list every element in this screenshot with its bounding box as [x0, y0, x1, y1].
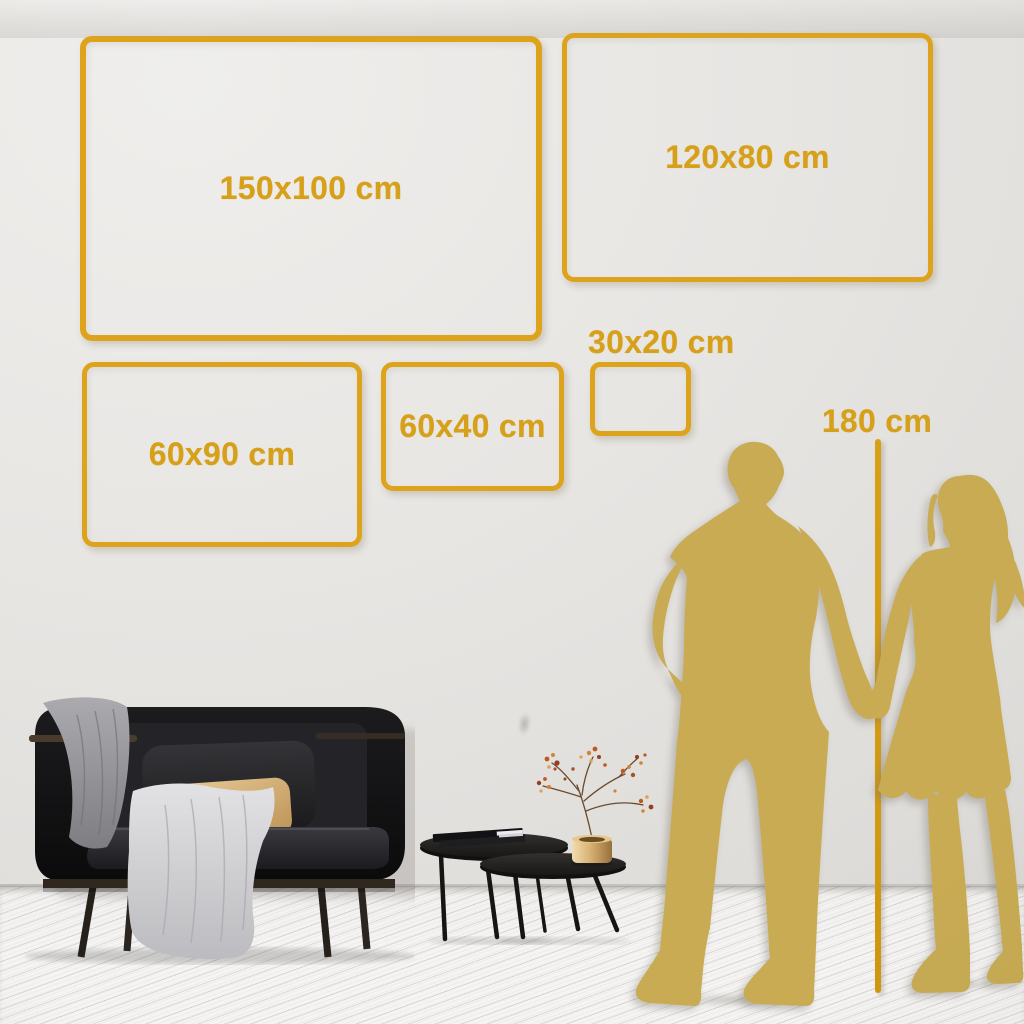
- woman-front-strand: [927, 494, 938, 547]
- frame-150x100-label: 150x100 cm: [220, 170, 403, 207]
- height-reference-label: 180 cm: [822, 403, 932, 440]
- frame-120x80-label: 120x80 cm: [665, 139, 830, 176]
- frame-60x90: 60x90 cm: [82, 362, 362, 547]
- frame-60x90-label: 60x90 cm: [149, 436, 296, 473]
- branch-stems: [543, 757, 643, 838]
- man-body: [636, 442, 829, 1006]
- frame-60x40: 60x40 cm: [381, 362, 564, 491]
- size-guide-scene: 150x100 cm 120x80 cm 60x90 cm 60x40 cm 3…: [0, 0, 1024, 1024]
- white-throw-cloth: [128, 784, 275, 960]
- sofa-wood-rail-right: [315, 733, 405, 739]
- small-table-legs: [515, 871, 617, 937]
- frame-30x20: [590, 362, 691, 436]
- sofa: [15, 695, 415, 965]
- frame-60x40-label: 60x40 cm: [399, 408, 546, 445]
- vase-opening: [579, 837, 605, 842]
- couple-silhouettes: [630, 430, 1024, 1015]
- frame-30x20-label: 30x20 cm: [588, 324, 735, 361]
- woman-left-leg: [912, 792, 971, 993]
- woman-silhouette: [868, 475, 1024, 993]
- small-table-shadow: [499, 937, 631, 945]
- woman-right-leg: [984, 788, 1023, 984]
- frame-150x100: 150x100 cm: [80, 36, 542, 341]
- frame-120x80: 120x80 cm: [562, 33, 933, 282]
- man-silhouette: [636, 442, 879, 1006]
- wall-smudge-shadow: [516, 711, 532, 737]
